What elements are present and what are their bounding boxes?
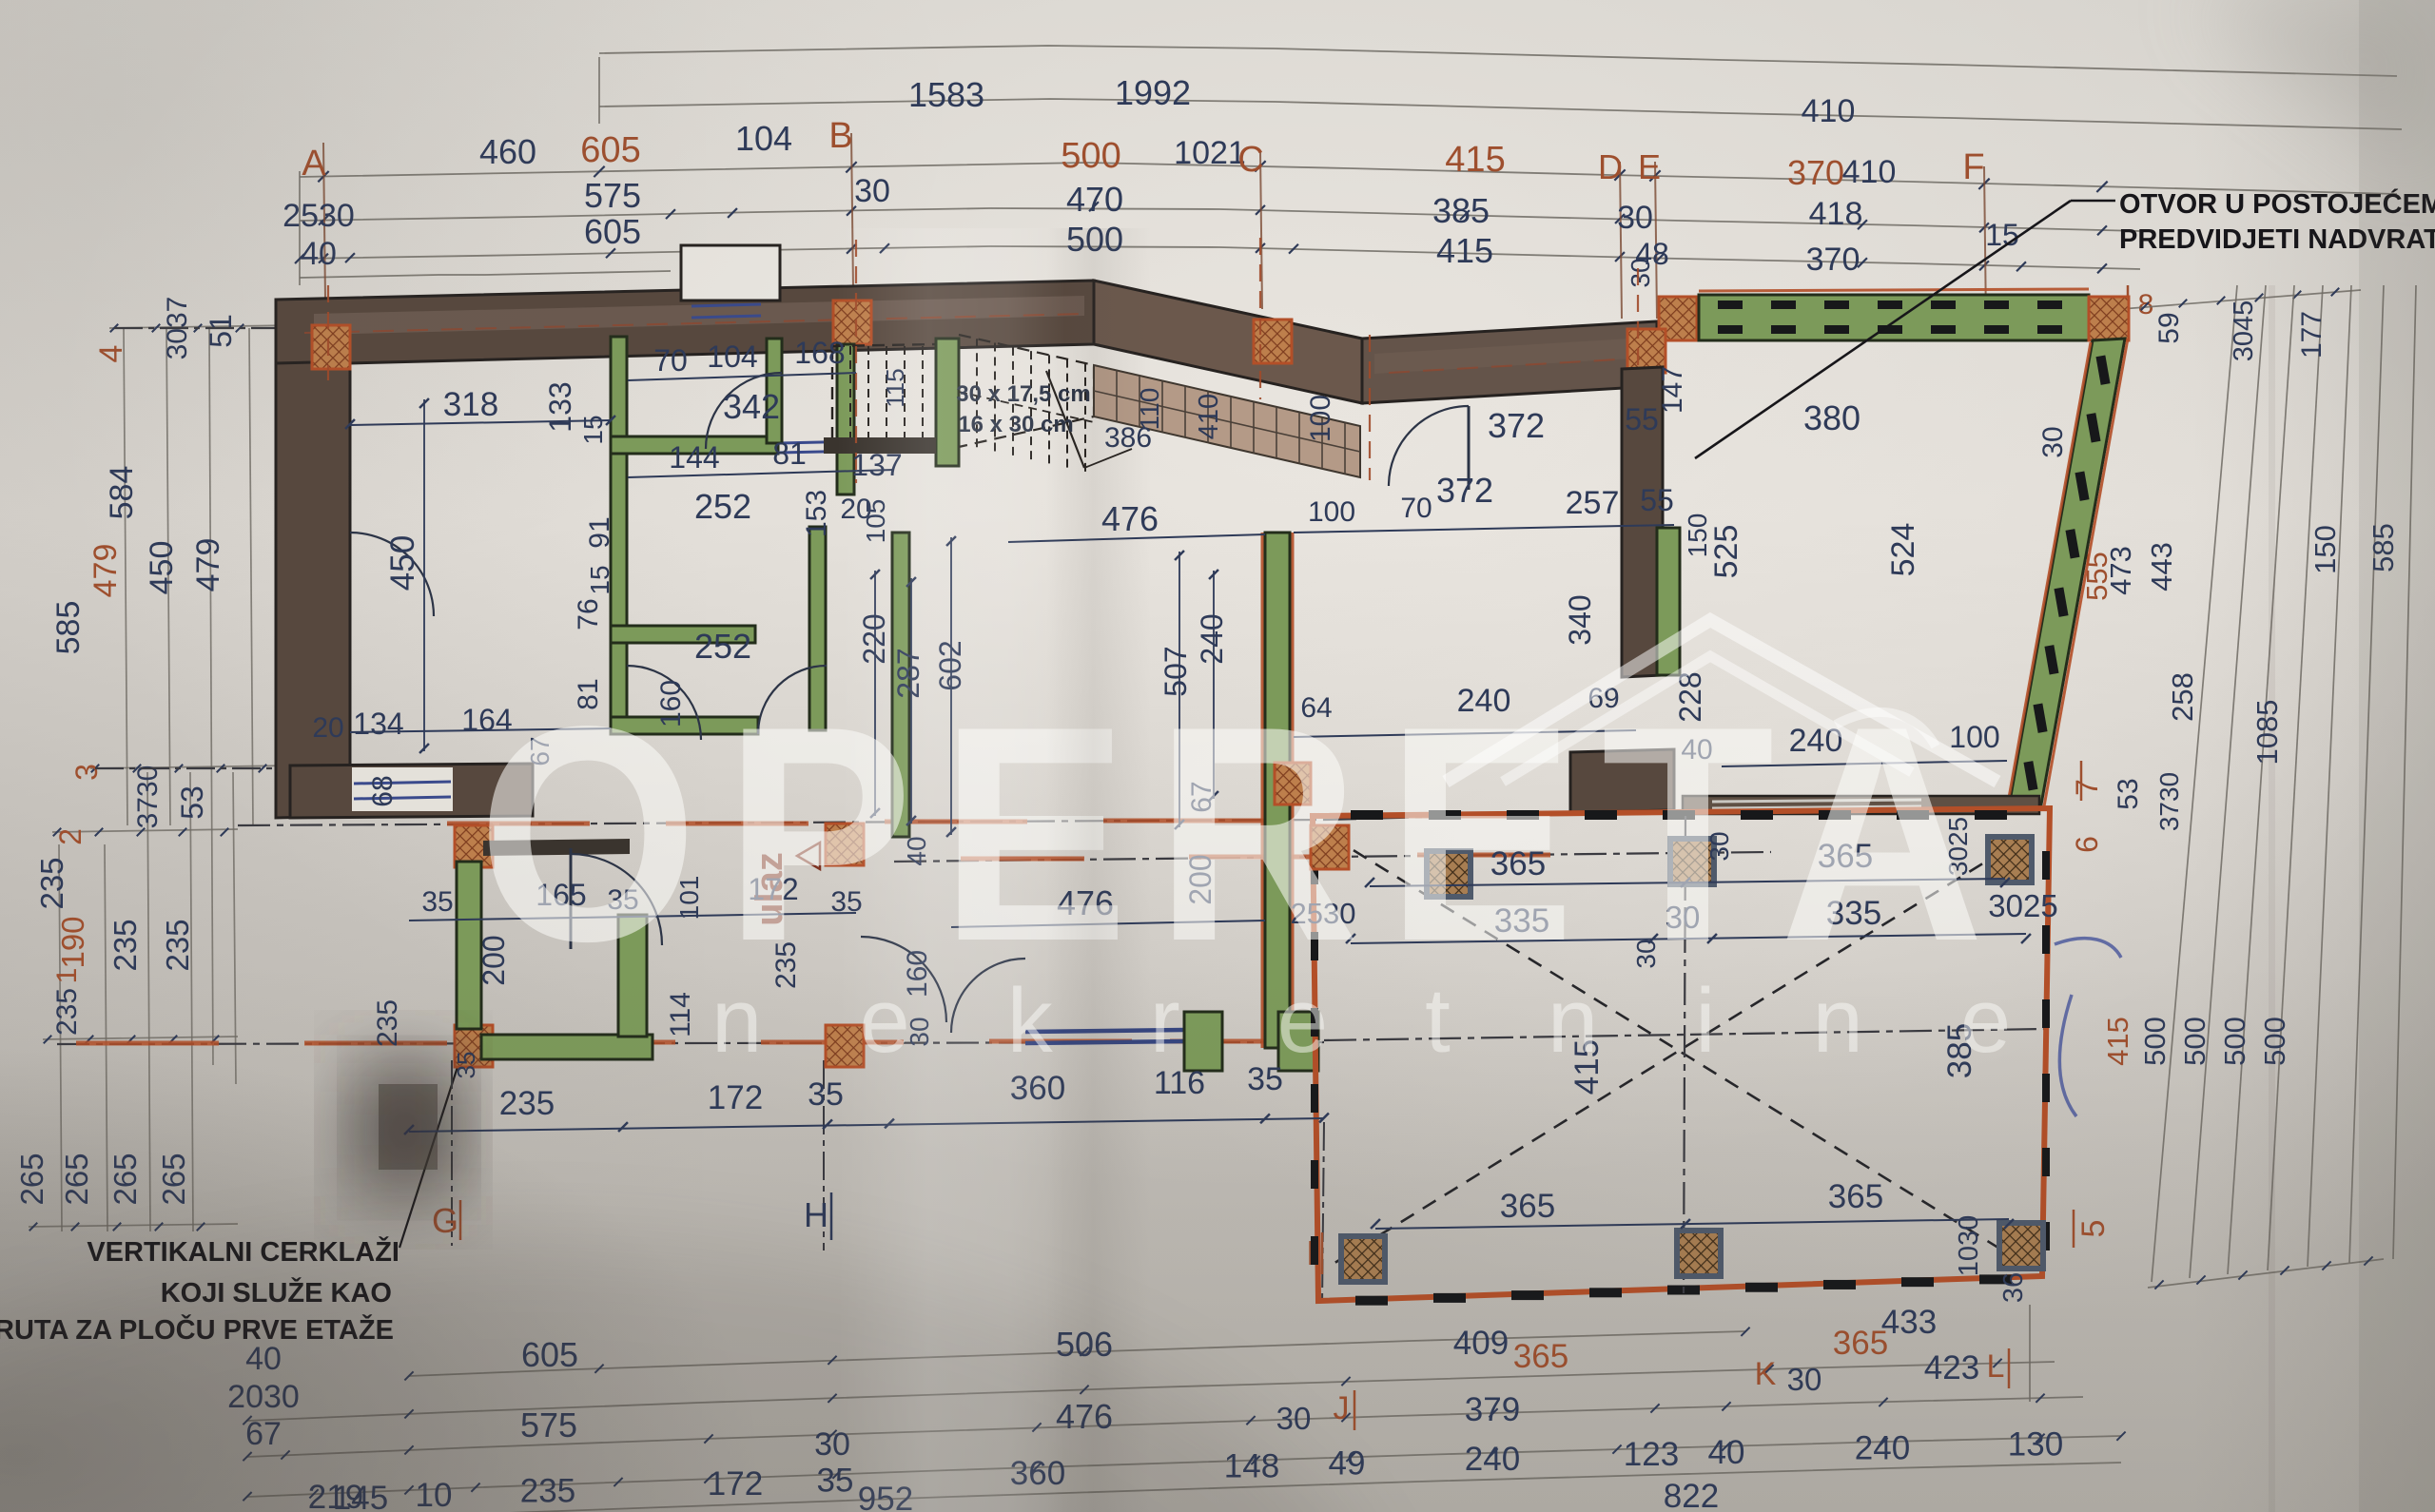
svg-text:134: 134 bbox=[353, 707, 403, 741]
svg-text:235: 235 bbox=[34, 857, 69, 909]
svg-text:3045: 3045 bbox=[2229, 300, 2259, 362]
svg-text:1992: 1992 bbox=[1115, 73, 1191, 112]
svg-text:370: 370 bbox=[1806, 242, 1860, 278]
svg-text:30: 30 bbox=[1617, 200, 1653, 236]
svg-text:153: 153 bbox=[801, 490, 832, 537]
svg-text:585: 585 bbox=[50, 601, 87, 655]
svg-text:410: 410 bbox=[1802, 93, 1856, 129]
svg-text:D: D bbox=[1598, 147, 1623, 186]
svg-text:500: 500 bbox=[1061, 136, 1120, 176]
svg-text:410: 410 bbox=[1842, 154, 1897, 190]
svg-text:177: 177 bbox=[2296, 311, 2328, 359]
svg-text:55: 55 bbox=[1640, 483, 1674, 517]
svg-text:3730: 3730 bbox=[2154, 772, 2184, 831]
svg-text:257: 257 bbox=[1566, 485, 1620, 521]
svg-text:252: 252 bbox=[694, 627, 751, 666]
svg-text:E: E bbox=[1638, 147, 1661, 186]
svg-text:524: 524 bbox=[1885, 523, 1921, 577]
svg-text:6: 6 bbox=[2070, 836, 2104, 853]
svg-text:59: 59 bbox=[2153, 312, 2185, 343]
svg-text:53: 53 bbox=[175, 785, 209, 820]
svg-text:240: 240 bbox=[1195, 613, 1229, 664]
svg-text:525: 525 bbox=[1708, 525, 1744, 579]
svg-text:147: 147 bbox=[1657, 366, 1688, 414]
svg-text:3: 3 bbox=[69, 764, 104, 781]
svg-text:1085: 1085 bbox=[2250, 700, 2284, 766]
svg-text:150: 150 bbox=[2308, 525, 2342, 574]
svg-text:53: 53 bbox=[2113, 778, 2144, 809]
svg-text:410: 410 bbox=[1194, 394, 1224, 439]
svg-text:415: 415 bbox=[1436, 231, 1493, 270]
svg-text:252: 252 bbox=[694, 487, 751, 526]
svg-text:81: 81 bbox=[772, 436, 807, 471]
svg-text:C: C bbox=[1237, 140, 1263, 180]
svg-text:20: 20 bbox=[312, 712, 343, 744]
svg-text:7: 7 bbox=[2070, 779, 2104, 796]
svg-text:372: 372 bbox=[1436, 471, 1493, 510]
svg-text:380: 380 bbox=[1803, 398, 1860, 437]
svg-text:370: 370 bbox=[1787, 153, 1844, 192]
svg-text:15: 15 bbox=[585, 565, 614, 594]
svg-text:340: 340 bbox=[1563, 594, 1597, 645]
svg-text:3730: 3730 bbox=[132, 766, 164, 829]
svg-text:55: 55 bbox=[1625, 402, 1659, 436]
svg-text:2: 2 bbox=[53, 828, 88, 845]
svg-text:76: 76 bbox=[573, 598, 604, 630]
svg-text:30: 30 bbox=[1626, 258, 1655, 287]
svg-text:1021: 1021 bbox=[1174, 135, 1246, 171]
svg-text:418: 418 bbox=[1809, 196, 1863, 232]
svg-text:30: 30 bbox=[2037, 426, 2069, 457]
svg-text:443: 443 bbox=[2145, 542, 2178, 591]
svg-text:415: 415 bbox=[1445, 140, 1505, 180]
svg-text:100: 100 bbox=[1308, 496, 1355, 528]
svg-text:F: F bbox=[1962, 147, 1984, 187]
svg-text:385: 385 bbox=[1432, 191, 1490, 230]
svg-text:470: 470 bbox=[1066, 180, 1123, 219]
svg-text:70: 70 bbox=[1400, 493, 1432, 524]
svg-text:372: 372 bbox=[1488, 406, 1545, 445]
svg-text:100: 100 bbox=[1305, 395, 1336, 442]
svg-text:258: 258 bbox=[2166, 672, 2199, 722]
svg-text:68: 68 bbox=[367, 775, 399, 806]
